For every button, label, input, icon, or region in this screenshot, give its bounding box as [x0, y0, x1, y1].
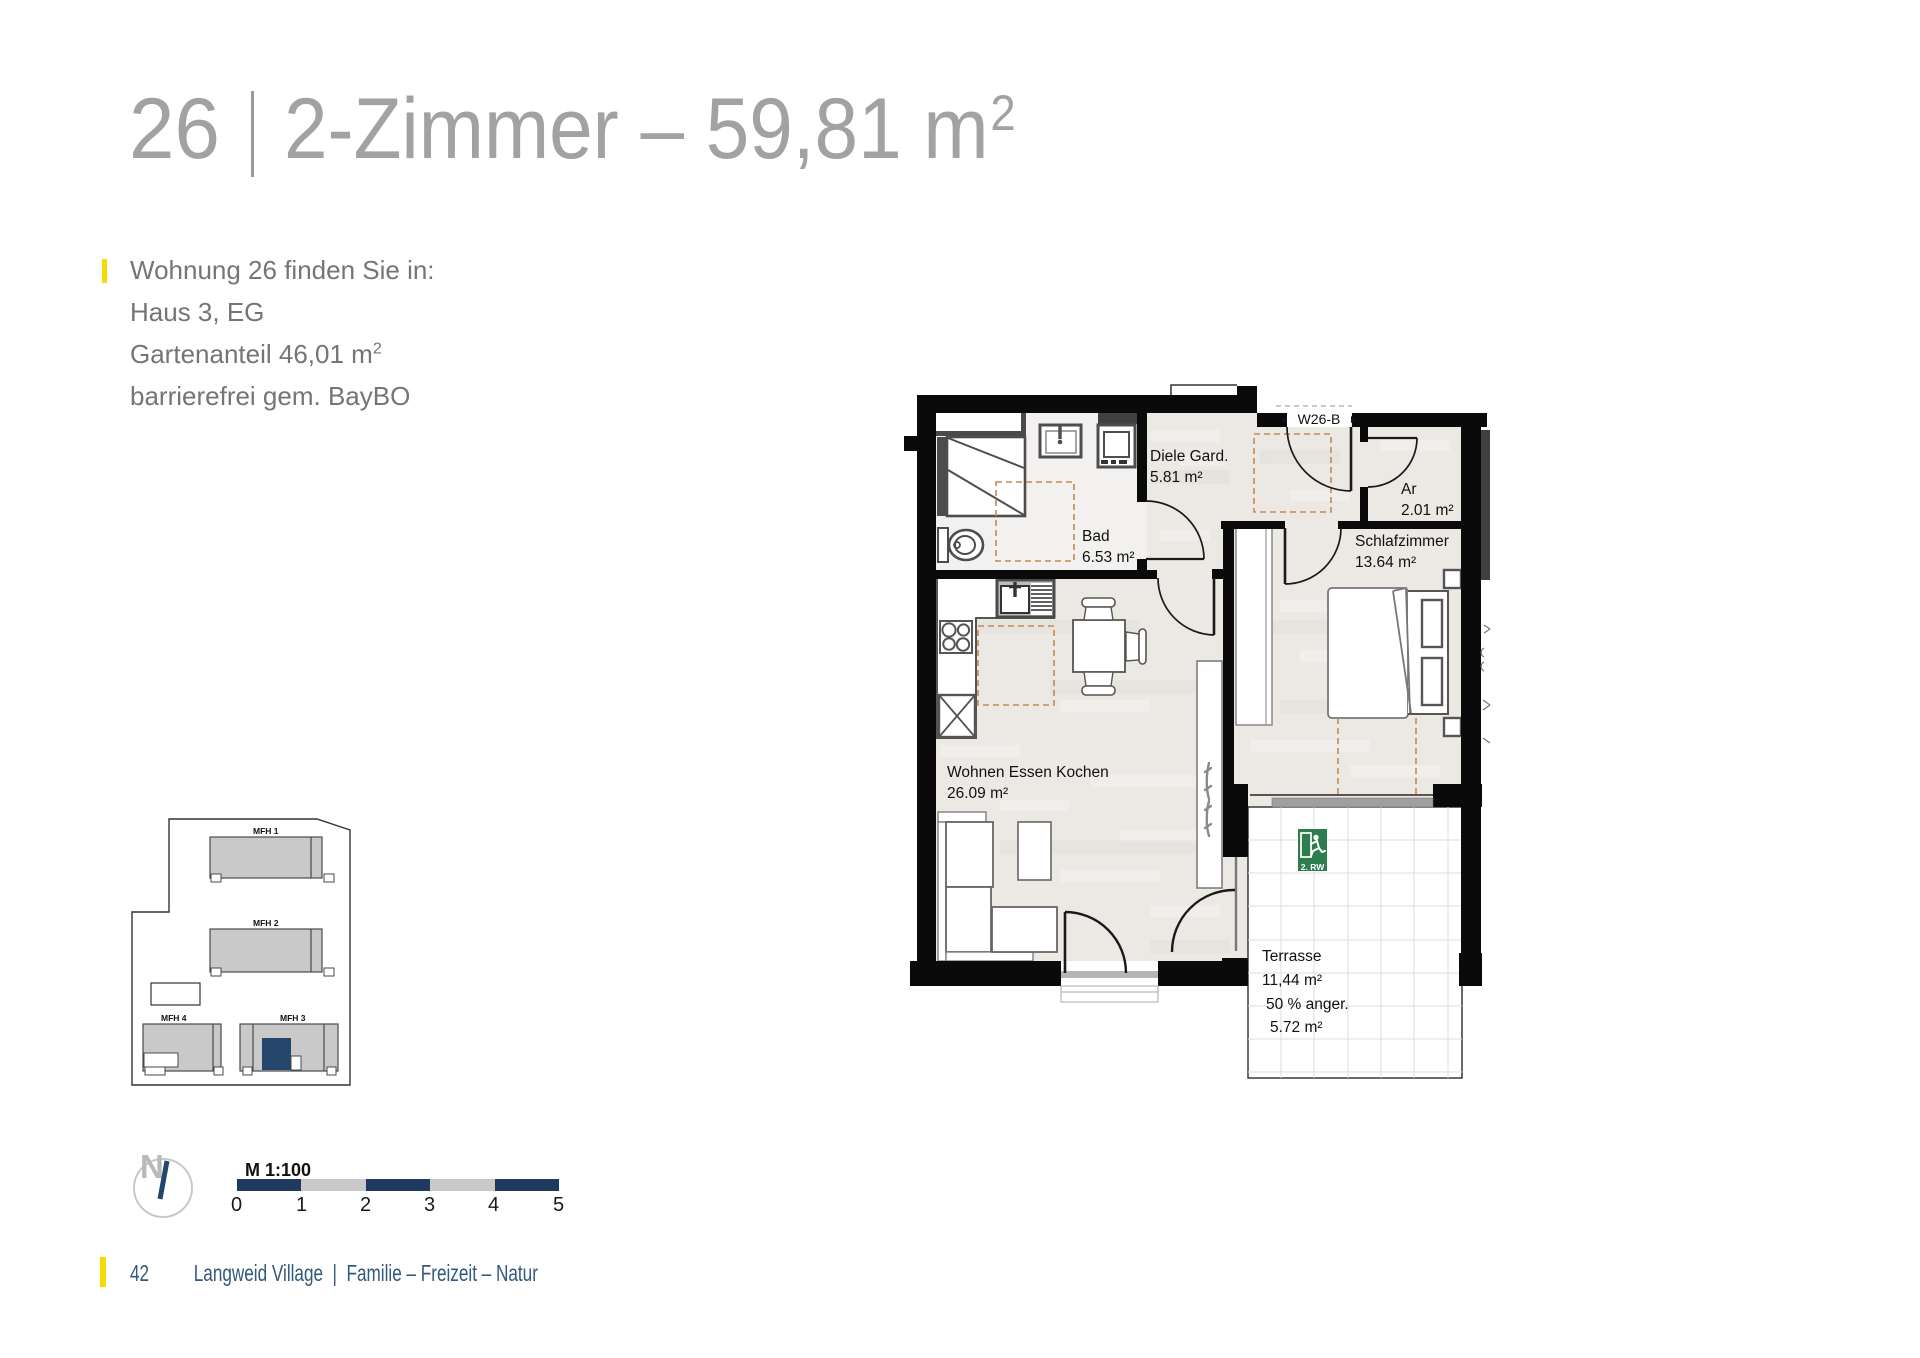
svg-text:MFH 3: MFH 3: [280, 1013, 306, 1023]
svg-text:13.64 m²: 13.64 m²: [1355, 554, 1416, 571]
svg-text:N: N: [140, 1148, 164, 1185]
svg-text:Wohnen Essen Kochen: Wohnen Essen Kochen: [947, 764, 1109, 781]
svg-text:MFH 1: MFH 1: [253, 826, 279, 836]
svg-text:Diele Gard.: Diele Gard.: [1150, 448, 1228, 465]
svg-text:Schlafzimmer: Schlafzimmer: [1355, 533, 1449, 550]
svg-text:5.72 m²: 5.72 m²: [1270, 1019, 1323, 1036]
svg-text:Terrasse: Terrasse: [1262, 948, 1321, 965]
svg-text:MFH 2: MFH 2: [253, 918, 279, 928]
svg-text:5.81 m²: 5.81 m²: [1150, 469, 1203, 486]
svg-text:MFH 4: MFH 4: [161, 1013, 187, 1023]
svg-text:2.01 m²: 2.01 m²: [1401, 502, 1454, 519]
svg-text:Bad: Bad: [1082, 528, 1110, 545]
svg-text:2. RW: 2. RW: [1301, 862, 1325, 872]
svg-text:Ar: Ar: [1401, 481, 1417, 498]
svg-text:11,44 m²: 11,44 m²: [1262, 972, 1322, 989]
svg-text:6.53 m²: 6.53 m²: [1082, 549, 1135, 566]
svg-text:W26-B: W26-B: [1298, 411, 1341, 427]
svg-text:26.09 m²: 26.09 m²: [947, 785, 1008, 802]
svg-text:50 % anger.: 50 % anger.: [1266, 996, 1349, 1013]
